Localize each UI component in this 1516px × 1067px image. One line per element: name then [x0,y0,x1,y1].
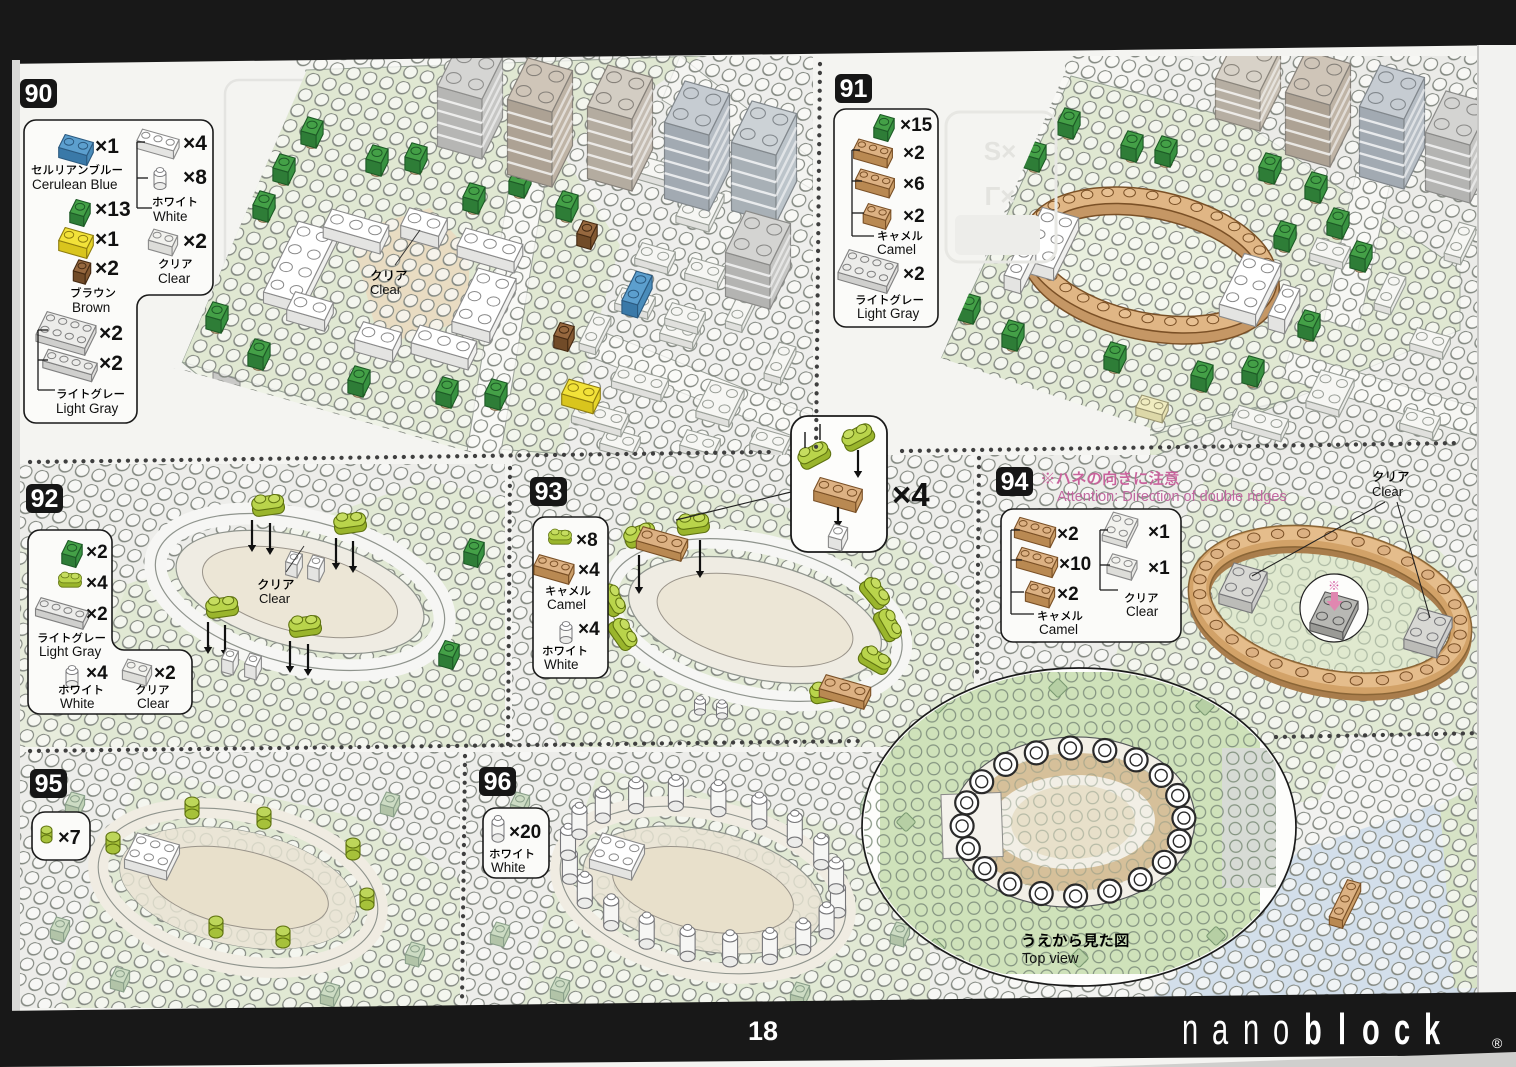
svg-text:Brown: Brown [72,300,110,315]
svg-text:Clear: Clear [1372,484,1404,499]
svg-text:×2: ×2 [903,206,925,227]
svg-text:S×: S× [984,136,1017,166]
svg-text:c: c [1394,1004,1410,1054]
svg-text:Cerulean Blue: Cerulean Blue [32,177,118,192]
svg-text:×7: ×7 [58,827,81,849]
svg-text:92: 92 [31,485,59,513]
svg-text:×4: ×4 [86,573,108,594]
svg-text:a: a [1212,1004,1228,1054]
svg-text:o: o [1362,1004,1380,1054]
svg-text:White: White [60,696,95,711]
svg-text:94: 94 [1001,468,1029,496]
svg-text:Clear: Clear [1126,604,1159,619]
svg-text:×2: ×2 [99,322,123,345]
svg-text:Camel: Camel [877,242,916,257]
svg-text:White: White [491,860,526,875]
svg-text:×4: ×4 [578,560,600,581]
svg-text:×4: ×4 [183,132,207,155]
svg-text:Camel: Camel [547,597,586,612]
svg-text:Camel: Camel [1039,622,1078,637]
svg-text:×2: ×2 [154,663,176,684]
svg-text:Light Gray: Light Gray [56,401,119,416]
svg-text:×6: ×6 [903,174,925,195]
svg-text:×2: ×2 [86,604,108,625]
svg-text:×1: ×1 [95,228,119,251]
svg-text:95: 95 [35,770,63,798]
svg-text:×8: ×8 [576,530,598,551]
svg-text:White: White [544,657,579,672]
svg-text:White: White [153,209,188,224]
svg-text:93: 93 [535,478,563,506]
svg-text:n: n [1243,1004,1259,1054]
svg-text:×15: ×15 [900,115,933,136]
svg-text:×20: ×20 [509,822,541,843]
svg-text:×2: ×2 [1057,524,1079,545]
svg-text:96: 96 [484,768,512,796]
svg-text:18: 18 [748,1016,778,1046]
svg-text:Γ×: Γ× [985,181,1016,211]
svg-text:×1: ×1 [1148,522,1170,543]
svg-text:l: l [1338,1004,1346,1054]
svg-text:×1: ×1 [95,135,119,158]
svg-text:Light Gray: Light Gray [857,306,920,321]
svg-text:n: n [1182,1004,1198,1054]
svg-text:×2: ×2 [86,542,108,563]
svg-text:Light Gray: Light Gray [39,644,102,659]
svg-text:Clear: Clear [370,282,402,297]
svg-text:Clear: Clear [158,271,191,286]
svg-text:×2: ×2 [99,352,123,375]
svg-text:91: 91 [840,75,868,103]
svg-text:Attention: Direction of double: Attention: Direction of double ridges [1057,489,1287,505]
svg-text:®: ® [1492,1035,1503,1051]
svg-text:×2: ×2 [903,264,925,285]
svg-text:×1: ×1 [1148,558,1170,579]
svg-text:90: 90 [25,80,53,108]
svg-text:b: b [1304,1004,1322,1054]
svg-text:×2: ×2 [95,257,119,280]
svg-text:Top view: Top view [1022,951,1079,967]
svg-text:×10: ×10 [1059,554,1091,575]
svg-text:×4: ×4 [578,619,600,640]
svg-text:×2: ×2 [1057,584,1079,605]
svg-text:×4: ×4 [892,476,930,513]
svg-text:×13: ×13 [95,198,131,221]
svg-text:Clear: Clear [259,591,291,606]
svg-text:×2: ×2 [903,143,925,164]
svg-text:×2: ×2 [183,230,207,253]
svg-text:×8: ×8 [183,166,207,189]
svg-text:o: o [1273,1004,1289,1054]
svg-text:Clear: Clear [137,696,170,711]
svg-text:×4: ×4 [86,663,108,684]
svg-text:k: k [1424,1004,1440,1054]
